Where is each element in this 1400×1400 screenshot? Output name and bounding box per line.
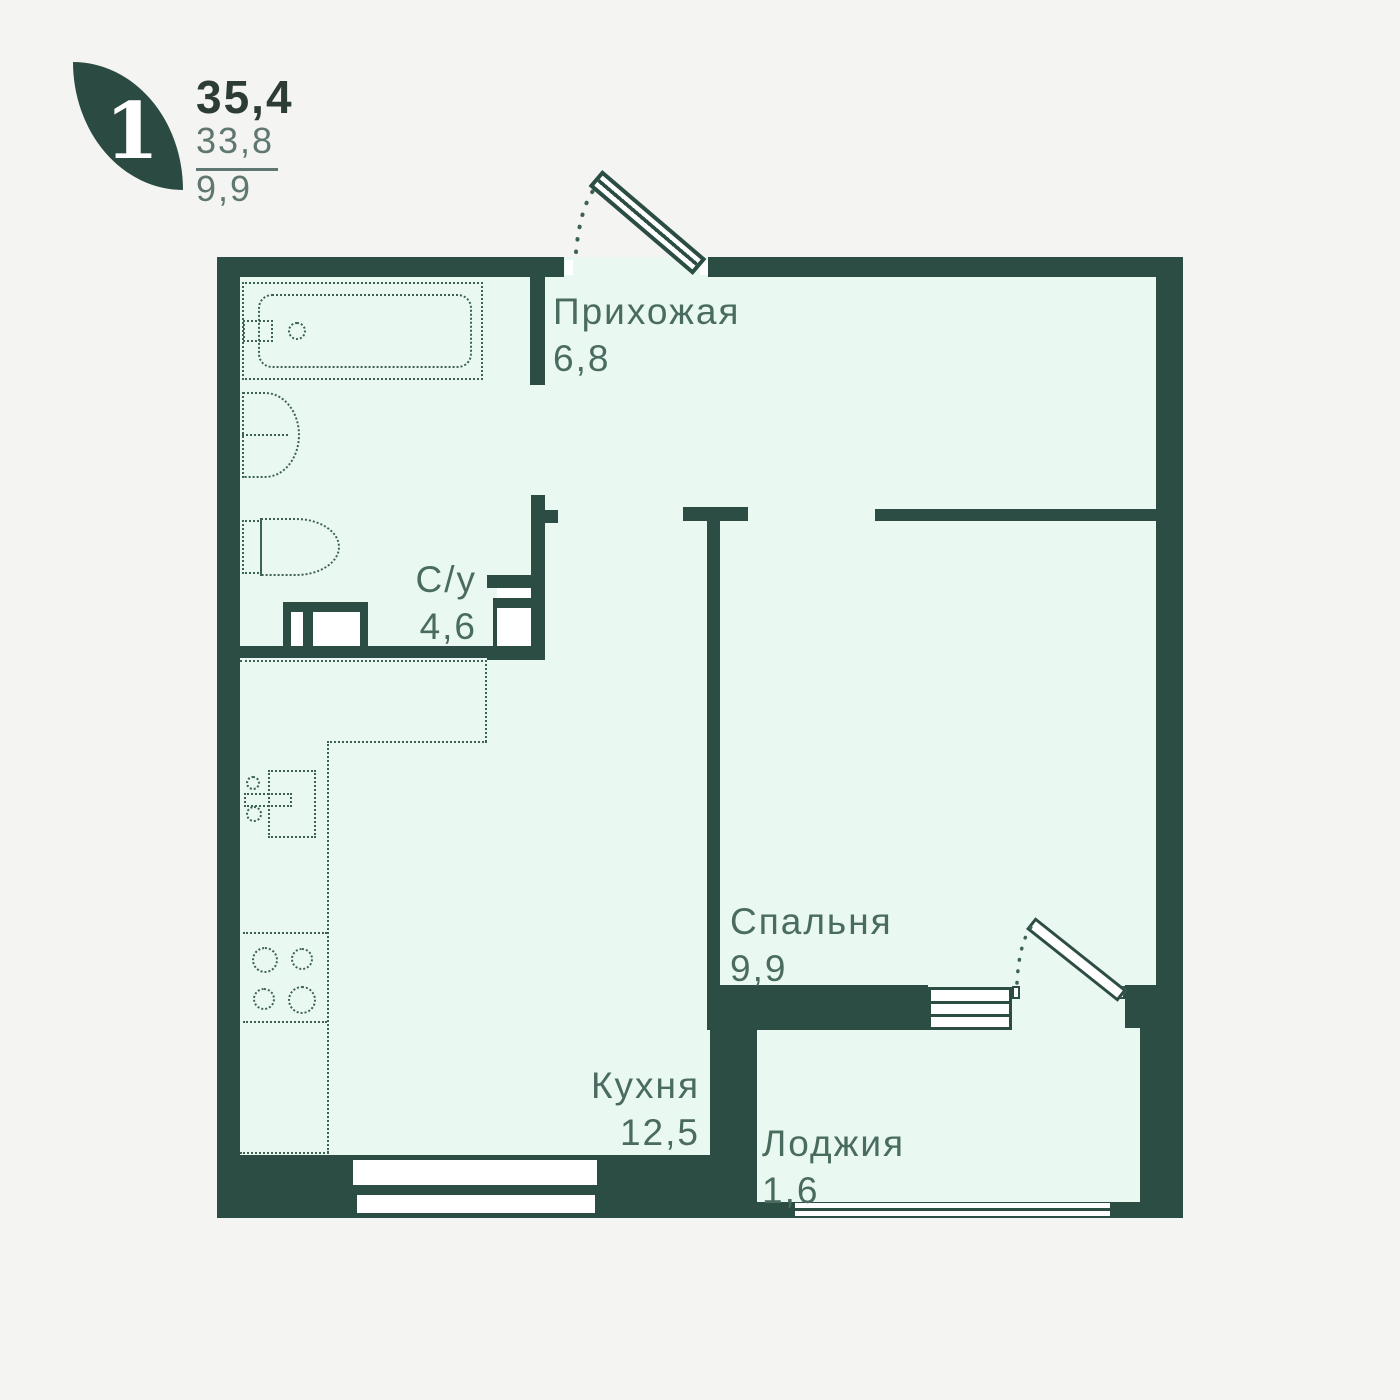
bath-cabinet-shelf1 (497, 588, 531, 598)
apartment-interior (217, 257, 1183, 1218)
kitchen-zone-line-right2 (327, 741, 329, 1153)
logo-leaf: 1 (73, 62, 183, 190)
sink-divider (242, 434, 288, 436)
bedroom-window-line1 (931, 1001, 1009, 1004)
label-loggia: Лоджия 1,6 (762, 1120, 905, 1214)
kitchen-zone-line-right1 (485, 660, 487, 742)
wall-loggia-left (710, 985, 757, 1218)
bedroom-window (928, 987, 1012, 1030)
bath-cabinet-mid (493, 598, 531, 608)
floorplan-page: 1 35,4 33,8 9,9 (0, 0, 1400, 1400)
label-loggia-area: 1,6 (762, 1167, 905, 1214)
stove-burner-2 (291, 948, 313, 970)
wall-loggia-right (1140, 1028, 1183, 1218)
wall-balcony-corner (1125, 985, 1183, 1028)
washer-slot-narrow (291, 612, 303, 646)
kitchen-zone-line-bottom (240, 1152, 329, 1154)
wall-top-right (708, 257, 1183, 277)
stove-burner-3 (253, 988, 275, 1010)
kitchen-area: 9,9 (196, 168, 252, 210)
wall-left (217, 257, 240, 1218)
stove-burner-4 (288, 986, 316, 1014)
wall-bath-lower (531, 495, 545, 660)
kitchen-faucet-icon1 (246, 776, 260, 790)
label-hallway: Прихожая 6,8 (553, 288, 740, 382)
living-area: 33,8 (196, 120, 278, 171)
label-bedroom-name: Спальня (730, 898, 893, 945)
balcony-door-jamb-left (1012, 986, 1020, 999)
total-area: 35,4 (196, 70, 294, 124)
kitchen-window-outer (355, 1193, 597, 1215)
label-kitchen-name: Кухня (520, 1062, 700, 1109)
kitchen-zone-line-step (327, 741, 487, 743)
label-bathroom-name: С/у (327, 556, 477, 603)
bath-cabinet-bottom (487, 646, 545, 660)
toilet-tank (242, 520, 262, 574)
stove-line-bottom (243, 1021, 327, 1023)
kitchen-zone-line-top (240, 660, 487, 662)
wall-bath-stub (545, 510, 558, 523)
wall-t-bar (683, 507, 748, 521)
label-kitchen: Кухня 12,5 (520, 1062, 700, 1156)
bath-cabinet-top (487, 575, 531, 588)
wall-bath-upper (530, 277, 545, 385)
label-hallway-area: 6,8 (553, 335, 740, 382)
label-bedroom: Спальня 9,9 (730, 898, 893, 992)
bathtub-faucet-icon (288, 322, 306, 340)
label-bathroom: С/у 4,6 (327, 556, 477, 650)
logo-room-count: 1 (105, 93, 159, 171)
wall-top-left (217, 257, 564, 277)
label-loggia-name: Лоджия (762, 1120, 905, 1167)
bathtub-tap-icon (243, 320, 273, 342)
label-kitchen-area: 12,5 (520, 1109, 700, 1156)
label-hallway-name: Прихожая (553, 288, 740, 335)
kitchen-sink-bar (244, 793, 292, 807)
bedroom-window-line2 (931, 1014, 1009, 1017)
stove-burner-1 (252, 947, 278, 973)
wall-hall-bedroom (875, 509, 1156, 521)
label-bedroom-area: 9,9 (730, 945, 893, 992)
kitchen-window-inner (350, 1157, 600, 1188)
bath-cabinet-shelf2 (497, 608, 531, 646)
stove-line-top (243, 932, 327, 934)
entrance-door-jamb-left (565, 260, 573, 275)
wall-t-stem (707, 521, 720, 985)
kitchen-faucet-icon2 (246, 806, 262, 822)
label-bathroom-area: 4,6 (327, 603, 477, 650)
